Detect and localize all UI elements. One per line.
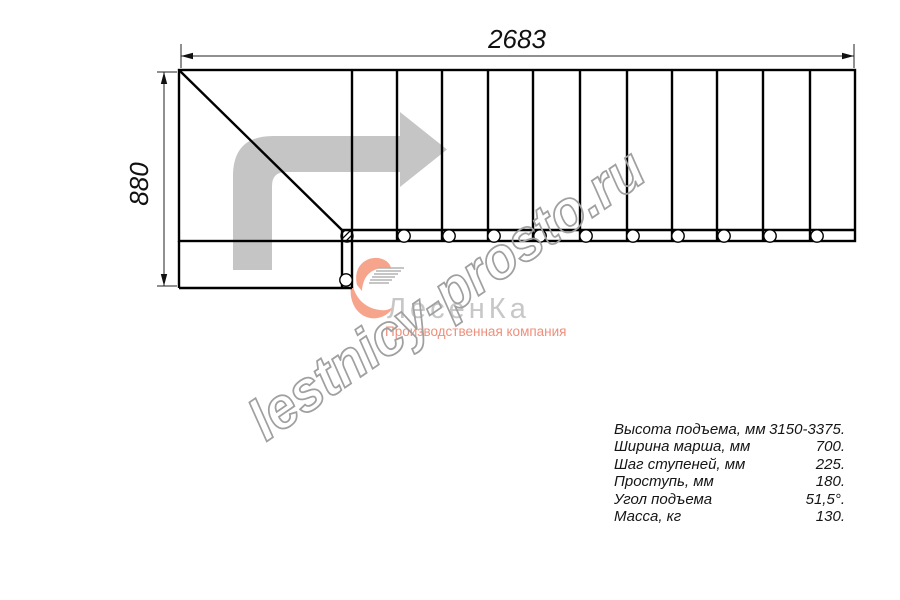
spec-row-step-pitch: Шаг ступеней, мм 225. — [614, 456, 845, 473]
spec-value: 180. — [816, 473, 845, 490]
spec-label: Высота подъема, мм — [614, 421, 766, 438]
spec-label: Ширина марша, мм — [614, 438, 750, 455]
stair-drawing-page: ЛесенКа Производственная компания — [0, 0, 900, 600]
spec-label: Шаг ступеней, мм — [614, 456, 745, 473]
spec-value: 700. — [816, 438, 845, 455]
spec-label: Масса, кг — [614, 508, 681, 525]
specs-table: Высота подъема, мм 3150-3375. Ширина мар… — [614, 421, 845, 525]
spec-label: Проступь, мм — [614, 473, 714, 490]
dim-arrow-right — [842, 53, 854, 59]
dimension-height-label: 880 — [124, 162, 154, 206]
dimension-width-label: 2683 — [487, 24, 546, 54]
dim-arrow-left — [181, 53, 193, 59]
dim-arrow-down — [161, 274, 167, 286]
logo-steps-lines — [369, 268, 404, 283]
dim-arrow-up — [161, 72, 167, 84]
spec-label: Угол подъема — [614, 491, 712, 508]
spec-row-flight-width: Ширина марша, мм 700. — [614, 438, 845, 455]
spec-row-mass: Масса, кг 130. — [614, 508, 845, 525]
spec-value: 51,5°. — [806, 491, 845, 508]
spec-row-angle: Угол подъема 51,5°. — [614, 491, 845, 508]
dimension-height — [157, 72, 177, 286]
spec-row-tread: Проступь, мм 180. — [614, 473, 845, 490]
spec-value: 3150-3375. — [769, 421, 845, 438]
spec-value: 225. — [816, 456, 845, 473]
spec-value: 130. — [816, 508, 845, 525]
spec-row-height: Высота подъема, мм 3150-3375. — [614, 421, 845, 438]
direction-arrow — [233, 112, 447, 270]
watermark-text: lestnicy-prosto.ru — [237, 136, 657, 453]
